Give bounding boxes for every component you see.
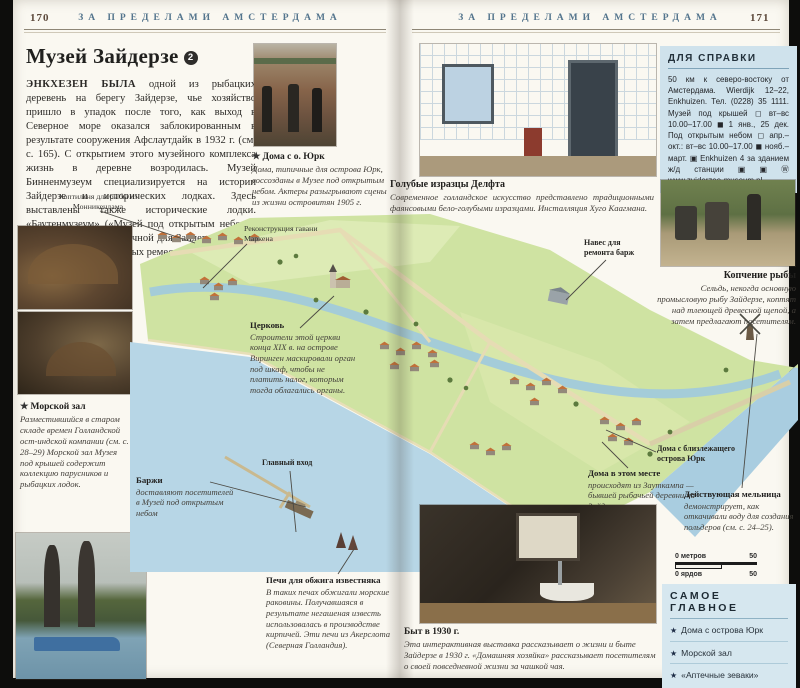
smoking-barrel [675,206,697,240]
book-spread: 170 ЗА ПРЕДЕЛАМИ АМСТЕРДАМА ЗА ПРЕДЕЛАМИ… [0,0,800,688]
kiln-chimney [44,545,60,627]
kiln-chimney [78,541,95,627]
page-title: Музей Зайдерзе2 [26,44,198,69]
wood-counter [420,603,656,623]
delft-caption-text: Современное голландское искусство предст… [390,192,654,214]
map-label-yurk-nearby: Дома с близлежащего острова Юрк [657,444,755,463]
costumed-figure [262,86,272,132]
costumed-figure [288,84,299,132]
map-label-main-entrance: Главный вход [262,458,312,468]
fish-smoking-photo [661,180,795,266]
kitchen-1930-photo [420,505,656,623]
red-chair [524,128,542,156]
highlights-box: САМОЕ ГЛАВНОЕ ★Дома с острова Юрк ★Морск… [662,584,796,688]
page-number-right: 171 [750,12,770,24]
callout-kilns-text: В таких печах обжигали морские раковины.… [266,587,408,651]
wooden-boat [46,342,116,376]
infobox-title: ДЛЯ СПРАВКИ [668,53,789,69]
smoking-barrel [705,202,729,240]
smoker-figure [747,194,761,240]
highlight-item-text: Дома с острова Юрк [681,625,763,635]
highlights-title: САМОЕ ГЛАВНОЕ [670,590,788,619]
highlight-item: ★Дома с острова Юрк [670,619,788,642]
scale-bar-white [675,565,722,569]
life-1930-text: Эта интерактивная выставка рассказывает … [404,639,662,672]
map-scale-bar: 0 метров50 0 ярдов50 [675,553,757,578]
intro-lead: ЭНКХЕЗЕН БЫЛА [26,79,136,90]
page-title-text: Музей Зайдерзе [26,44,179,68]
roofline [254,58,336,64]
header-rule-right-2 [412,32,780,33]
map-label-smokehouse: Коптильня для рыбы из Монникендама [38,192,158,211]
map-label-shed: Навес для ремонта барж [584,238,636,257]
callout-mill: Действующая мельница демонстрирует, как … [684,489,796,533]
delft-caption-title: Голубые изразцы Делфта [390,179,654,190]
running-head-right: ЗА ПРЕДЕЛАМИ АМСТЕРДАМА [445,13,735,23]
lime-kiln-chimneys-photo [16,533,146,679]
infobox: ДЛЯ СПРАВКИ 50 км к северо-востоку от Ам… [660,46,797,193]
highlight-item-text: Морской зал [681,648,732,658]
callout-barges-text: доставляют посетителей в Музей под откры… [136,487,234,519]
highlight-item: ★«Аптечные зеваки» [670,664,788,686]
callout-kilns-title: Печи для обжига известняка [266,575,408,586]
callout-mill-text: демонстрирует, как откачивали воду для с… [684,501,796,533]
sea-hall-photo-2 [18,312,132,394]
delft-caption: Голубые изразцы Делфта Современное голла… [390,179,654,214]
star-icon: ★ [670,649,677,658]
costumed-figure [312,88,322,132]
sea-hall-caption-text: Разместившийся в старом складе времен Го… [20,414,132,490]
yurk-caption-title: Дома с о. Юрк [263,152,325,162]
star-icon: ★ [670,671,677,680]
star-icon: ★ [670,626,677,635]
life-1930-title: Быт в 1930 г. [404,627,662,637]
map-label-marken: Реконструкция гавани Маркена [244,224,336,243]
sea-hall-caption-title: Морской зал [31,402,86,412]
smoking-caption-title: Копчение рыбы [656,270,796,281]
header-rule-left [24,29,386,30]
dark-doorway [568,60,618,162]
header-rule-left-2 [24,32,386,33]
infobox-text: 50 км к северо-востоку от Амстердама. Wi… [668,74,789,186]
callout-barges-title: Баржи [136,475,234,486]
scale-yards-label: 0 ярдов [675,571,702,578]
floor [420,156,656,176]
star-icon: ★ [252,152,261,162]
callout-mill-title: Действующая мельница [684,489,796,500]
scale-meters-label: 0 метров [675,553,706,560]
window [442,64,494,124]
smoking-caption-text: Сельдь, некогда основную промысловую рыб… [656,283,796,327]
scale-yards-max: 50 [749,571,757,578]
scale-meters-max: 50 [749,553,757,560]
sea-hall-caption: ★Морской зал Разместившийся в старом скл… [20,401,132,490]
callout-church: Церковь Строители этой церкви конца XIX … [250,320,356,396]
callout-kilns: Печи для обжига известняка В таких печах… [266,575,408,651]
callout-church-text: Строители этой церкви конца XIX в. на ос… [250,332,356,396]
water-pump [558,561,562,585]
delft-tiles-photo [420,44,656,176]
smoking-caption: Копчение рыбы Сельдь, некогда основную п… [656,270,796,327]
highlight-item-text: «Аптечные зеваки» [681,670,758,680]
page-number-left: 170 [30,12,50,24]
header-rule-right [412,29,780,30]
life-1930-caption: Быт в 1930 г. Эта интерактивная выставка… [404,627,662,672]
callout-houses-here-title: Дома в этом месте [588,468,700,479]
yurk-houses-photo [254,44,336,146]
white-basin [540,583,594,601]
sea-hall-photo-1 [18,226,132,309]
blue-boat [34,637,120,651]
wooden-hull [28,244,118,284]
highlight-item: ★Морской зал [670,642,788,665]
callout-barges: Баржи доставляют посетителей в Музей под… [136,475,234,519]
running-head-left: ЗА ПРЕДЕЛАМИ АМСТЕРДАМА [60,13,360,23]
map-number-badge: 2 [184,51,198,65]
star-icon: ★ [20,402,29,412]
callout-church-title: Церковь [250,320,356,331]
bright-window [516,513,580,561]
